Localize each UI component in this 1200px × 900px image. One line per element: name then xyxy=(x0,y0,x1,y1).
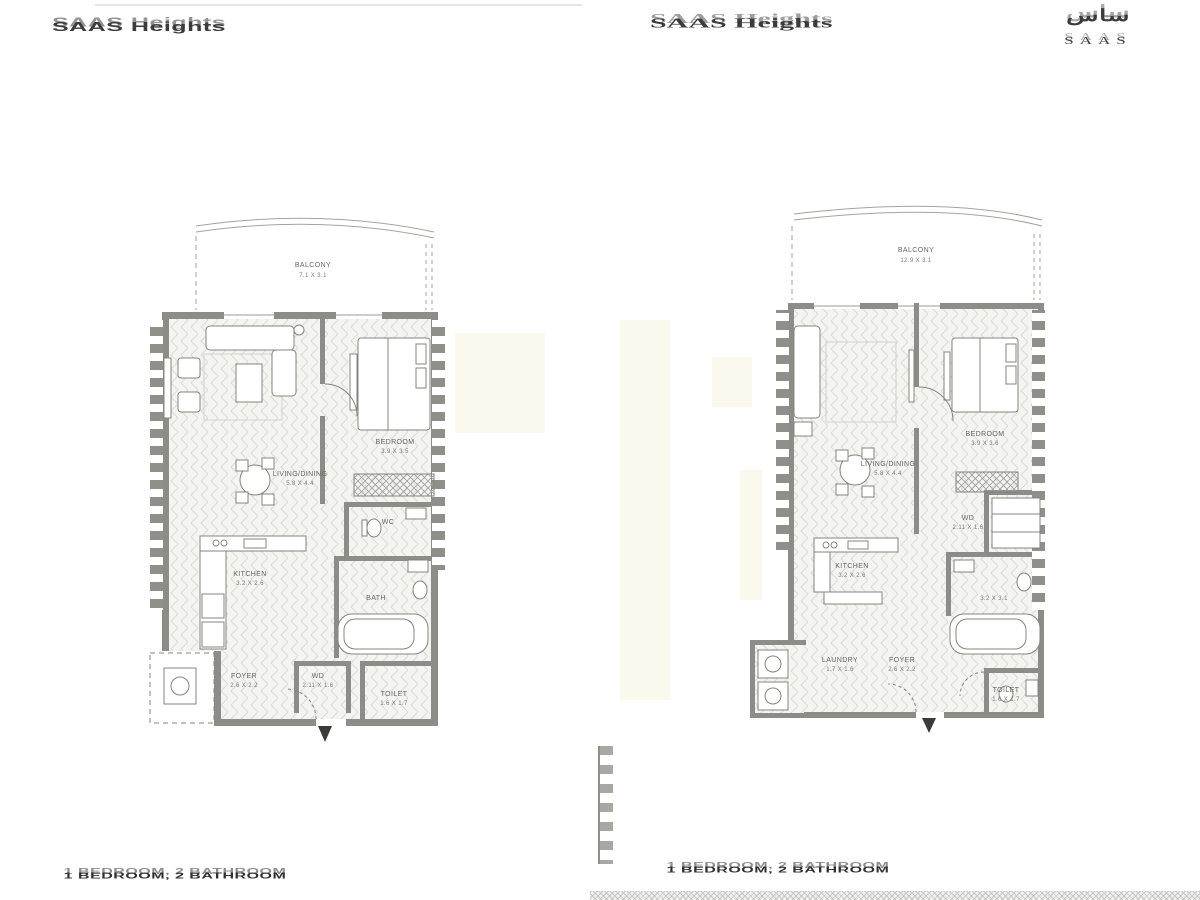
toilet-dim: 1.6 X 1.7 xyxy=(380,701,408,707)
floorplan-left-drawing: BALCONY 7.1 X 3.1 xyxy=(148,208,460,760)
window-strip-left xyxy=(776,310,789,550)
brand-latin-text: SAAS xyxy=(1058,35,1138,47)
balcony-label: BALCONY xyxy=(898,247,934,254)
sofa-corner xyxy=(272,350,296,396)
laundry-dim: 1.7 X 1.6 xyxy=(826,667,854,673)
fridge xyxy=(202,622,224,647)
brand-logo-center: SAAS Heights xyxy=(650,16,833,31)
dining-chair xyxy=(836,450,848,461)
floorplan-right: BALCONY 12.9 X 3.1 xyxy=(748,202,1060,750)
sink xyxy=(954,560,974,572)
laundry-label: LAUNDRY xyxy=(822,657,858,664)
oven xyxy=(202,594,224,618)
dining-chair xyxy=(262,494,274,505)
living-dim: 5.8 X 4.4 xyxy=(874,471,902,477)
foyer-label: FOYER xyxy=(889,657,915,664)
balcony-label: BALCONY xyxy=(295,262,331,269)
caption-left-plan: 1 BEDROOM, 2 BATHROOM xyxy=(55,872,295,881)
kitchen-label: KITCHEN xyxy=(233,571,267,578)
wardrobe-hatch xyxy=(354,474,434,496)
brand-logo-left: SAAS Heights xyxy=(52,20,226,35)
entry-arrow-icon xyxy=(318,726,332,742)
sofa xyxy=(206,326,294,350)
wd-label: WD xyxy=(962,515,974,522)
bedroom-label: BEDROOM xyxy=(376,439,415,446)
sink xyxy=(1026,680,1038,696)
toilet-tank xyxy=(362,520,367,536)
kitchen-sink xyxy=(848,541,868,549)
foyer-dim: 2.6 X 2.2 xyxy=(230,683,258,689)
entry-arrow-icon xyxy=(922,718,936,733)
dining-chair xyxy=(862,486,874,497)
top-hairline xyxy=(95,4,582,6)
kitchen-sink xyxy=(244,539,266,548)
watermark-blob xyxy=(455,333,545,433)
dining-chair xyxy=(862,448,874,459)
toilet-label: TOILET xyxy=(381,691,408,698)
dryer xyxy=(758,682,788,710)
tv-unit xyxy=(909,350,914,402)
dining-chair xyxy=(262,458,274,469)
wd-closet xyxy=(992,498,1040,548)
living-label: LIVING/DINING xyxy=(861,461,916,468)
window-strip-right xyxy=(1032,310,1045,610)
bedroom-dim: 3.9 X 3.5 xyxy=(381,449,409,455)
window-strip-left xyxy=(150,320,163,610)
tv-unit xyxy=(164,358,171,418)
floorplan-left: BALCONY 7.1 X 3.1 xyxy=(148,208,460,760)
pillow xyxy=(416,344,426,364)
toilet-fixture xyxy=(413,581,427,599)
dining-chair xyxy=(836,484,848,495)
kitchen-label: KITCHEN xyxy=(835,563,869,570)
pillow xyxy=(416,368,426,388)
wd-dim: 2.11 X 1.6 xyxy=(953,525,984,531)
brand-arabic-text: ساس xyxy=(1058,6,1138,25)
floorplan-right-drawing: BALCONY 12.9 X 3.1 xyxy=(748,202,1060,750)
bath-label: BATH xyxy=(366,595,386,602)
dining-chair xyxy=(236,492,248,503)
bottom-hatch-strip xyxy=(590,891,1200,900)
coffee-table xyxy=(236,364,262,402)
bedroom-dim: 3.9 X 3.6 xyxy=(971,441,999,447)
kitchen-column xyxy=(814,552,830,592)
toilet-fixture xyxy=(1017,573,1031,591)
checkered-strip xyxy=(598,746,613,864)
wardrobe-hatch xyxy=(956,472,1018,492)
wd-dim: 2.11 X 1.6 xyxy=(303,683,334,689)
washing-machine xyxy=(164,668,196,704)
window-strip-right xyxy=(432,320,445,570)
watermark-blob xyxy=(620,320,670,700)
hob-burner xyxy=(213,540,219,546)
watermark-blob xyxy=(712,357,752,407)
plant xyxy=(294,325,304,335)
hob-burner xyxy=(221,540,227,546)
living-label: LIVING/DINING xyxy=(273,471,328,478)
bedroom-label: BEDROOM xyxy=(966,431,1005,438)
sink xyxy=(406,508,426,519)
brand-logo-right: ساس SAAS xyxy=(1058,6,1138,55)
armchair xyxy=(178,358,200,378)
washing-machine xyxy=(758,650,788,678)
toilet-dim: 1.6 X 1.7 xyxy=(992,697,1020,703)
pillow xyxy=(1006,366,1016,384)
dining-chair xyxy=(236,460,248,471)
kitchen-dim: 3.2 X 2.6 xyxy=(838,573,866,579)
pillow xyxy=(1006,344,1016,362)
kitchen-dim: 3.2 X 2.6 xyxy=(236,581,264,587)
kitchen-island xyxy=(824,592,882,604)
hob-burner xyxy=(831,542,837,548)
foyer-dim: 2.6 X 2.2 xyxy=(888,667,916,673)
hob-burner xyxy=(823,542,829,548)
bath-dim: 3.2 X 3.1 xyxy=(980,596,1008,602)
balcony-dim: 7.1 X 3.1 xyxy=(299,273,327,279)
balcony-dim: 12.9 X 3.1 xyxy=(900,258,932,264)
wd-label: WD xyxy=(312,673,324,680)
side-table xyxy=(794,422,812,436)
armchair xyxy=(178,392,200,412)
caption-right-plan: 1 BEDROOM, 2 BATHROOM xyxy=(658,866,898,875)
toilet-label: TOILET xyxy=(993,687,1020,694)
sofa xyxy=(794,326,820,418)
toilet-fixture xyxy=(367,519,381,537)
bed-bench xyxy=(944,352,950,400)
sink xyxy=(408,560,428,572)
living-dim: 5.8 X 4.4 xyxy=(286,481,314,487)
wc-label: WC xyxy=(382,519,394,526)
foyer-label: FOYER xyxy=(231,673,257,680)
